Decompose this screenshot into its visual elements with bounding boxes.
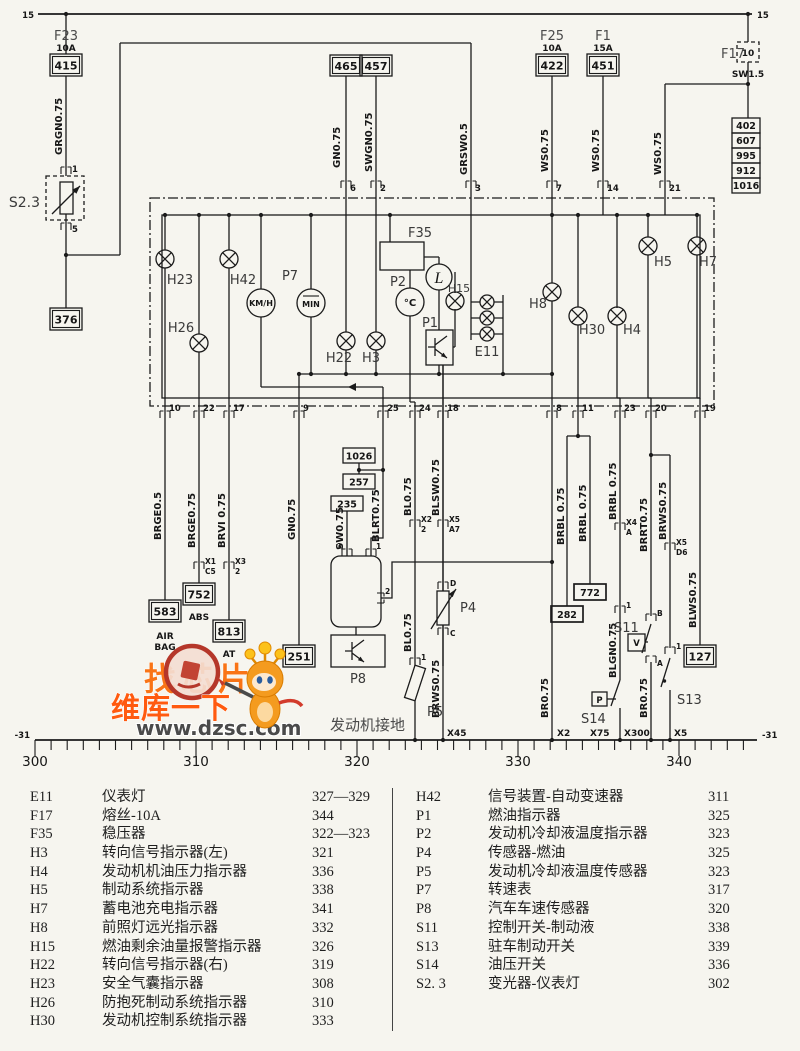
svg-text:X300: X300 bbox=[624, 729, 650, 739]
svg-text:607: 607 bbox=[736, 136, 756, 147]
rail-31-right: -31 bbox=[762, 731, 777, 741]
svg-text:X4: X4 bbox=[626, 518, 637, 527]
h7-label: H7 bbox=[699, 255, 717, 270]
svg-text:V: V bbox=[633, 639, 640, 649]
svg-text:X5: X5 bbox=[676, 538, 687, 547]
s23-label: S2.3 bbox=[9, 195, 40, 211]
legend-row: H4发动机机油压力指示器336 bbox=[30, 863, 392, 882]
e11-label: E11 bbox=[475, 345, 500, 360]
ref-box-752: 752 bbox=[183, 583, 215, 605]
svg-text:23: 23 bbox=[624, 404, 636, 414]
svg-text:813: 813 bbox=[218, 626, 241, 639]
svg-text:19: 19 bbox=[704, 404, 716, 414]
svg-text:1: 1 bbox=[72, 165, 78, 175]
svg-text:GN0.75: GN0.75 bbox=[332, 127, 343, 168]
diagram-labels: 15 15 F23 10A F25 10A F1 15A F17 10 SW1.… bbox=[9, 11, 778, 770]
svg-text:9: 9 bbox=[303, 404, 309, 414]
svg-text:20: 20 bbox=[655, 404, 667, 414]
ref-box-422: 422 bbox=[536, 54, 568, 76]
svg-text:1026: 1026 bbox=[346, 452, 373, 463]
h22-label: H22 bbox=[326, 351, 352, 366]
lamp-h26-icon bbox=[190, 334, 208, 352]
svg-text:465: 465 bbox=[335, 60, 358, 73]
rail-15-left: 15 bbox=[22, 11, 34, 21]
legend-row: F35稳压器322—323 bbox=[30, 825, 392, 844]
legend-row: S11控制开关-制动液338 bbox=[416, 919, 788, 938]
svg-text:415: 415 bbox=[55, 60, 78, 73]
wire-label: GRGN0.75 bbox=[54, 98, 65, 155]
svg-text:1016: 1016 bbox=[733, 181, 760, 192]
s13-label: S13 bbox=[677, 693, 702, 708]
lamp-h3-icon bbox=[367, 332, 385, 350]
svg-text:P: P bbox=[596, 696, 602, 706]
legend-row: H23安全气囊指示器308 bbox=[30, 975, 392, 994]
svg-text:1: 1 bbox=[376, 542, 381, 551]
ref-box-772: 772 bbox=[574, 584, 606, 600]
legend-row: S14油压开关336 bbox=[416, 956, 788, 975]
svg-text:BRGE0.5: BRGE0.5 bbox=[153, 492, 164, 540]
svg-text:X5: X5 bbox=[674, 729, 687, 739]
svg-text:15A: 15A bbox=[593, 44, 613, 54]
svg-text:BLRT0.75: BLRT0.75 bbox=[371, 489, 382, 542]
h42-label: H42 bbox=[230, 273, 256, 288]
h3-label: H3 bbox=[362, 351, 380, 366]
lamp-e11-icon bbox=[480, 295, 494, 309]
svg-text:10: 10 bbox=[742, 49, 755, 59]
fuse-f23-label: F23 bbox=[54, 29, 78, 44]
scanned-wiring-diagram-page: 415 376 465 457 422 451 402 607 995 912 … bbox=[0, 0, 800, 1051]
p5-label: P5 bbox=[427, 705, 443, 720]
svg-text:BL0.75: BL0.75 bbox=[403, 477, 414, 516]
ref-box-127: 127 bbox=[684, 645, 716, 667]
fuse-f1-label: F1 bbox=[595, 29, 611, 44]
svg-text:5: 5 bbox=[72, 225, 78, 235]
svg-text:8: 8 bbox=[556, 404, 562, 414]
legend-code: E11 bbox=[30, 788, 102, 807]
svg-text:A: A bbox=[657, 659, 663, 668]
svg-text:1: 1 bbox=[676, 642, 681, 651]
svg-text:2: 2 bbox=[421, 525, 426, 534]
lamp-e11-icon bbox=[480, 311, 494, 325]
wiring-diagram: 415 376 465 457 422 451 402 607 995 912 … bbox=[0, 0, 800, 780]
s11-label: S11 bbox=[614, 621, 639, 636]
rail-15-right: 15 bbox=[757, 11, 769, 21]
svg-text:WS0.75: WS0.75 bbox=[653, 132, 664, 175]
svg-text:2: 2 bbox=[385, 587, 390, 596]
dimmer-rheostat-s23 bbox=[46, 176, 84, 220]
legend-row: H8前照灯远光指示器332 bbox=[30, 919, 392, 938]
legend-row: P1燃油指示器325 bbox=[416, 807, 788, 826]
svg-text:6: 6 bbox=[350, 184, 356, 194]
legend-column-right: H42信号装置-自动变速器311 P1燃油指示器325 P2发动机冷却液温度指示… bbox=[416, 788, 788, 994]
ref-box-376: 376 bbox=[50, 308, 82, 330]
legend-row: F17熔丝-10A344 bbox=[30, 807, 392, 826]
svg-text:X1: X1 bbox=[205, 557, 216, 566]
svg-text:BRVI 0.75: BRVI 0.75 bbox=[217, 493, 228, 548]
svg-text:WS0.75: WS0.75 bbox=[591, 129, 602, 172]
svg-text:C5: C5 bbox=[205, 567, 216, 576]
ref-box-257: 257 bbox=[343, 474, 375, 489]
svg-text:402: 402 bbox=[736, 121, 756, 132]
svg-text:BLSW0.75: BLSW0.75 bbox=[431, 459, 442, 516]
svg-text:D6: D6 bbox=[676, 548, 687, 557]
ref-box-465: 465 bbox=[330, 55, 362, 76]
svg-text:3: 3 bbox=[475, 184, 481, 194]
svg-text:AT: AT bbox=[223, 650, 236, 660]
p1-label: P1 bbox=[422, 316, 438, 331]
svg-text:X5: X5 bbox=[449, 515, 460, 524]
s14-label: S14 bbox=[581, 712, 606, 727]
voltage-stabilizer-box bbox=[380, 242, 424, 270]
lamp-h7-icon bbox=[688, 237, 706, 255]
legend-table: E11仪表灯327—329 F17熔丝-10A344 F35稳压器322—323… bbox=[0, 782, 800, 1051]
svg-text:17: 17 bbox=[233, 404, 245, 414]
svg-text:2: 2 bbox=[380, 184, 386, 194]
svg-text:282: 282 bbox=[557, 610, 577, 621]
svg-text:422: 422 bbox=[541, 60, 564, 73]
ref-box-451: 451 bbox=[587, 54, 619, 76]
p7-label: P7 bbox=[282, 269, 298, 284]
legend-row: H7蓄电池充电指示器341 bbox=[30, 900, 392, 919]
svg-text:457: 457 bbox=[365, 60, 388, 73]
svg-text:SWGN0.75: SWGN0.75 bbox=[364, 112, 375, 172]
h8-label: H8 bbox=[529, 297, 547, 312]
svg-text:BRBL 0.75: BRBL 0.75 bbox=[578, 484, 589, 542]
svg-text:18: 18 bbox=[447, 404, 459, 414]
svg-text:752: 752 bbox=[188, 589, 211, 602]
rail-31-left: -31 bbox=[15, 731, 30, 741]
svg-text:ABS: ABS bbox=[189, 613, 209, 623]
legend-row: P2发动机冷却液温度指示器323 bbox=[416, 825, 788, 844]
ruler-340: 340 bbox=[666, 754, 692, 770]
legend-row: H30发动机控制系统指示器333 bbox=[30, 1012, 392, 1031]
ref-box-282: 282 bbox=[551, 606, 583, 622]
h26-label: H26 bbox=[168, 321, 194, 336]
svg-text:127: 127 bbox=[689, 651, 712, 664]
legend-row: H26防抱死制动系统指示器310 bbox=[30, 994, 392, 1013]
legend-row: H42信号装置-自动变速器311 bbox=[416, 788, 788, 807]
h5-label: H5 bbox=[654, 255, 672, 270]
svg-text:257: 257 bbox=[349, 478, 369, 489]
svg-text:X45: X45 bbox=[447, 729, 466, 739]
legend-row: H3转向信号指示器(左)321 bbox=[30, 844, 392, 863]
lamp-h5-icon bbox=[639, 237, 657, 255]
svg-text:°C: °C bbox=[404, 298, 416, 309]
h23-label: H23 bbox=[167, 273, 193, 288]
svg-text:10: 10 bbox=[169, 404, 181, 414]
svg-text:583: 583 bbox=[154, 606, 177, 619]
engine-ground-text: 发动机接地 bbox=[330, 716, 405, 734]
svg-text:BRBL 0.75: BRBL 0.75 bbox=[556, 487, 567, 545]
h4-label: H4 bbox=[623, 323, 641, 338]
svg-text:BRBL 0.75: BRBL 0.75 bbox=[608, 462, 619, 520]
ref-box-813: 813 bbox=[213, 620, 245, 642]
svg-text:11: 11 bbox=[582, 404, 594, 414]
svg-text:C: C bbox=[450, 629, 456, 638]
svg-text:AIR: AIR bbox=[156, 632, 173, 642]
p2-label: P2 bbox=[390, 275, 406, 290]
svg-text:X2: X2 bbox=[557, 729, 570, 739]
watermark: 找芯片 维库一下 www.dzsc.com bbox=[111, 642, 302, 740]
svg-text:WS0.75: WS0.75 bbox=[540, 129, 551, 172]
legend-column-left: E11仪表灯327—329 F17熔丝-10A344 F35稳压器322—323… bbox=[30, 788, 393, 1031]
legend-row: E11仪表灯327—329 bbox=[30, 788, 392, 807]
svg-text:BL0.75: BL0.75 bbox=[403, 613, 414, 652]
svg-text:251: 251 bbox=[288, 651, 311, 664]
svg-text:995: 995 bbox=[736, 151, 756, 162]
ruler-300: 300 bbox=[22, 754, 48, 770]
svg-text:KM/H: KM/H bbox=[249, 299, 273, 308]
svg-text:376: 376 bbox=[55, 314, 78, 327]
lamp-h42-icon bbox=[220, 250, 238, 268]
svg-text:451: 451 bbox=[592, 60, 615, 73]
ruler-320: 320 bbox=[344, 754, 370, 770]
speed-sensor-housing bbox=[331, 556, 381, 627]
temp-sensor-symbol bbox=[405, 665, 426, 701]
legend-name: 仪表灯 bbox=[102, 788, 312, 807]
legend-row: P8汽车车速传感器320 bbox=[416, 900, 788, 919]
f35-label: F35 bbox=[408, 226, 432, 241]
svg-text:1: 1 bbox=[421, 653, 426, 662]
p8-label: P8 bbox=[350, 672, 366, 687]
svg-text:10A: 10A bbox=[542, 44, 562, 54]
ruler-310: 310 bbox=[183, 754, 209, 770]
svg-text:7: 7 bbox=[556, 184, 562, 194]
signal-arrow-icon bbox=[348, 383, 356, 391]
svg-text:24: 24 bbox=[419, 404, 431, 414]
legend-row: P4传感器-燃油325 bbox=[416, 844, 788, 863]
fuel-sender-symbol bbox=[431, 589, 456, 629]
svg-text:A7: A7 bbox=[449, 525, 460, 534]
svg-text:14: 14 bbox=[607, 184, 619, 194]
svg-text:B: B bbox=[657, 609, 663, 618]
wiring-lines bbox=[35, 14, 757, 756]
legend-row: H5制动系统指示器338 bbox=[30, 881, 392, 900]
svg-text:X75: X75 bbox=[590, 729, 609, 739]
svg-text:MIN: MIN bbox=[302, 300, 320, 309]
legend-row: S2. 3变光器-仪表灯302 bbox=[416, 975, 788, 994]
svg-text:772: 772 bbox=[580, 588, 600, 599]
svg-text:22: 22 bbox=[203, 404, 215, 414]
legend-row: P7转速表317 bbox=[416, 881, 788, 900]
svg-text:1: 1 bbox=[626, 601, 631, 610]
svg-text:SW1.5: SW1.5 bbox=[732, 70, 764, 80]
speed-sensor-box bbox=[331, 635, 385, 667]
svg-text:L: L bbox=[434, 270, 444, 287]
legend-row: P5发动机冷却液温度传感器323 bbox=[416, 863, 788, 882]
svg-text:10A: 10A bbox=[56, 44, 76, 54]
ref-box-stack: 402 607 995 912 1016 bbox=[732, 118, 760, 193]
svg-text:BLWS0.75: BLWS0.75 bbox=[688, 572, 699, 628]
legend-page: 327—329 bbox=[312, 788, 392, 807]
fuse-f25-label: F25 bbox=[540, 29, 564, 44]
svg-text:BR0.75: BR0.75 bbox=[540, 678, 551, 718]
svg-text:21: 21 bbox=[669, 184, 681, 194]
svg-text:25: 25 bbox=[387, 404, 399, 414]
lamp-h23-icon bbox=[156, 250, 174, 268]
legend-row: S13驻车制动开关339 bbox=[416, 938, 788, 957]
ruler-330: 330 bbox=[505, 754, 531, 770]
svg-text:912: 912 bbox=[736, 166, 756, 177]
svg-text:BRRT0.75: BRRT0.75 bbox=[639, 498, 650, 552]
ref-box-1026: 1026 bbox=[343, 448, 375, 463]
lamp-e11-icon bbox=[480, 327, 494, 341]
ref-box-583: 583 bbox=[149, 600, 181, 622]
svg-text:3: 3 bbox=[337, 542, 342, 551]
svg-text:GN0.75: GN0.75 bbox=[287, 499, 298, 540]
svg-text:BRGE0.75: BRGE0.75 bbox=[187, 493, 198, 548]
svg-text:D: D bbox=[450, 579, 456, 588]
svg-text:BR0.75: BR0.75 bbox=[639, 678, 650, 718]
legend-row: H22转向信号指示器(右)319 bbox=[30, 956, 392, 975]
h30-label: H30 bbox=[579, 323, 605, 338]
svg-text:X2: X2 bbox=[421, 515, 432, 524]
svg-text:GRSW0.5: GRSW0.5 bbox=[459, 123, 470, 175]
svg-text:2: 2 bbox=[235, 567, 240, 576]
legend-row: H15燃油剩余油量报警指示器326 bbox=[30, 938, 392, 957]
svg-text:X3: X3 bbox=[235, 557, 246, 566]
ref-box-457: 457 bbox=[360, 55, 392, 76]
svg-text:BRWS0.75: BRWS0.75 bbox=[658, 482, 669, 540]
h15-label: H15 bbox=[448, 282, 470, 295]
ref-box-415: 415 bbox=[50, 54, 82, 76]
svg-text:BAG: BAG bbox=[154, 643, 175, 653]
ref-box-251: 251 bbox=[283, 645, 315, 667]
svg-text:A: A bbox=[626, 528, 632, 537]
p4-label: P4 bbox=[460, 601, 476, 616]
lamp-h22-icon bbox=[337, 332, 355, 350]
